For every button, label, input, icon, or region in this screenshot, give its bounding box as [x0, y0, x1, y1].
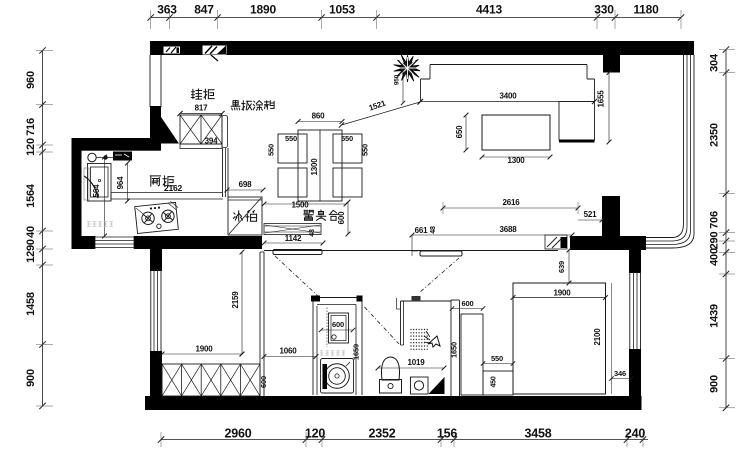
svg-text:330: 330 — [594, 3, 614, 17]
svg-text:2162: 2162 — [164, 183, 183, 193]
svg-text:550: 550 — [361, 144, 370, 156]
svg-text:716: 716 — [25, 118, 37, 136]
svg-text:1439: 1439 — [709, 304, 721, 328]
svg-text:550: 550 — [491, 354, 503, 363]
svg-text:120: 120 — [305, 427, 326, 441]
svg-text:2352: 2352 — [368, 427, 395, 441]
svg-text:860: 860 — [312, 112, 325, 121]
svg-text:600: 600 — [462, 299, 474, 308]
svg-text:550: 550 — [341, 134, 353, 143]
svg-text:698: 698 — [239, 180, 252, 189]
svg-text:964: 964 — [116, 176, 125, 189]
svg-text:2159: 2159 — [231, 291, 240, 309]
svg-text:363: 363 — [157, 3, 177, 17]
svg-text:120: 120 — [25, 138, 37, 156]
svg-text:450: 450 — [491, 376, 498, 387]
svg-text:600: 600 — [337, 211, 346, 224]
svg-text:1564: 1564 — [25, 183, 37, 208]
svg-text:550: 550 — [267, 144, 276, 156]
svg-text:2350: 2350 — [709, 123, 721, 147]
svg-text:346: 346 — [614, 369, 626, 378]
svg-text:960: 960 — [25, 71, 37, 89]
svg-text:1300: 1300 — [508, 156, 526, 165]
svg-text:706: 706 — [709, 211, 721, 229]
svg-text:1458: 1458 — [25, 292, 37, 316]
svg-text:900: 900 — [25, 369, 37, 387]
svg-text:48: 48 — [309, 229, 316, 237]
svg-text:1655: 1655 — [597, 90, 606, 108]
svg-text:564: 564 — [92, 184, 101, 197]
svg-text:240: 240 — [625, 427, 646, 441]
svg-text:1659: 1659 — [352, 344, 361, 360]
svg-text:550: 550 — [285, 134, 297, 143]
svg-text:1890: 1890 — [250, 3, 276, 17]
svg-text:1142: 1142 — [285, 234, 302, 243]
svg-text:1900: 1900 — [554, 289, 572, 298]
svg-text:1650: 1650 — [450, 342, 459, 358]
svg-text:290: 290 — [709, 232, 721, 250]
svg-text:394: 394 — [205, 137, 218, 146]
svg-text:48: 48 — [430, 226, 437, 234]
svg-text:304: 304 — [709, 53, 721, 72]
svg-text:847: 847 — [194, 3, 214, 17]
svg-text:650: 650 — [455, 125, 464, 138]
svg-text:2616: 2616 — [503, 198, 521, 207]
svg-text:521: 521 — [584, 210, 597, 219]
svg-text:40: 40 — [25, 226, 37, 238]
svg-text:1290: 1290 — [25, 239, 37, 263]
svg-text:1060: 1060 — [280, 347, 298, 356]
svg-text:1500: 1500 — [292, 201, 310, 210]
svg-text:400: 400 — [709, 248, 721, 266]
svg-text:3458: 3458 — [524, 427, 551, 441]
svg-text:4413: 4413 — [476, 3, 502, 17]
svg-text:3400: 3400 — [500, 92, 518, 101]
svg-text:2100: 2100 — [593, 328, 602, 346]
svg-text:1900: 1900 — [196, 345, 214, 354]
svg-text:900: 900 — [709, 375, 721, 393]
svg-text:639: 639 — [557, 261, 566, 273]
svg-text:156: 156 — [437, 427, 458, 441]
svg-text:3688: 3688 — [500, 225, 518, 234]
svg-text:1180: 1180 — [633, 3, 659, 17]
svg-text:817: 817 — [195, 104, 208, 113]
svg-text:600: 600 — [332, 320, 344, 329]
svg-text:1019: 1019 — [408, 358, 426, 367]
svg-text:1053: 1053 — [329, 3, 355, 17]
svg-text:2960: 2960 — [224, 427, 251, 441]
svg-text:661: 661 — [415, 226, 428, 235]
svg-text:950: 950 — [394, 74, 401, 85]
svg-text:1300: 1300 — [310, 158, 319, 176]
svg-text:600: 600 — [259, 376, 268, 388]
